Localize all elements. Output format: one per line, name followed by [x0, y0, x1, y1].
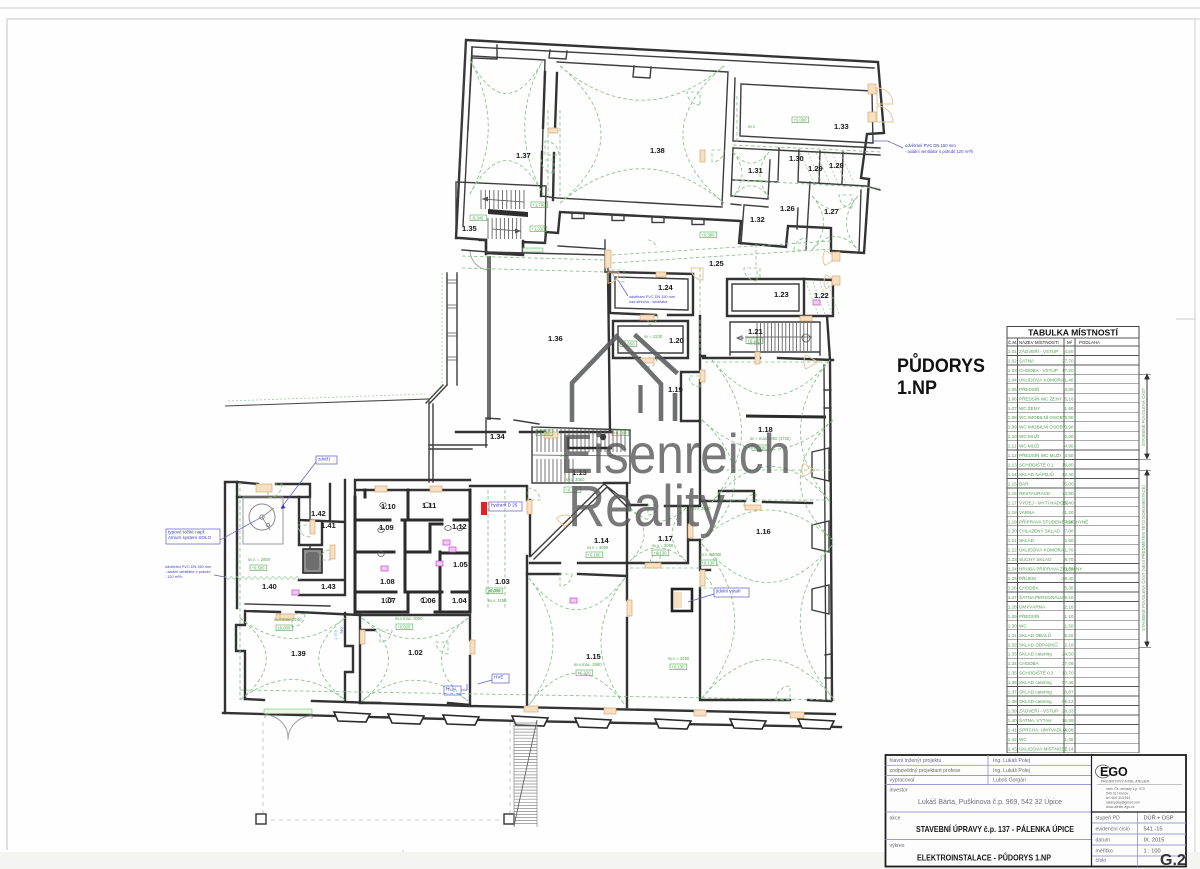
svg-text:1.05: 1.05 [1008, 387, 1017, 392]
svg-text:1.01: 1.01 [1008, 349, 1017, 354]
svg-text:1.38: 1.38 [650, 146, 665, 155]
svg-text:1.30: 1.30 [1008, 623, 1017, 628]
svg-text:1 : 100: 1 : 100 [1144, 849, 1161, 855]
svg-text:EGO: EGO [1100, 765, 1128, 779]
svg-text:-0,340: -0,340 [472, 215, 485, 220]
svg-text:WC IMOBILNÍ OSOBY: WC IMOBILNÍ OSOBY [1019, 414, 1066, 420]
svg-text:1.31: 1.31 [748, 166, 764, 175]
svg-text:±0,000: ±0,000 [278, 625, 291, 630]
svg-text:1.37: 1.37 [1008, 690, 1017, 695]
svg-text:1.09: 1.09 [379, 523, 394, 532]
svg-text:STAVEBNĚ POVOLENÁ ČÁST: STAVEBNĚ POVOLENÁ ČÁST [1141, 387, 1146, 446]
svg-text:19,80: 19,80 [1062, 463, 1074, 468]
svg-text:27,06: 27,06 [1062, 661, 1074, 666]
svg-text:WC ŽENY: WC ŽENY [1019, 404, 1040, 411]
svg-text:541 -15: 541 -15 [1144, 827, 1163, 833]
svg-text:1.03: 1.03 [495, 577, 510, 586]
svg-text:1.11: 1.11 [422, 501, 437, 510]
svg-text:4,08: 4,08 [1065, 727, 1074, 732]
svg-text:Č.M.: Č.M. [1008, 340, 1017, 345]
svg-text:PŘEDSÍŇ WC ŽENY: PŘEDSÍŇ WC ŽENY [1019, 394, 1062, 401]
svg-text:1.29: 1.29 [1008, 614, 1017, 619]
svg-text:DÚŘ + DSP: DÚŘ + DSP [1144, 814, 1174, 822]
svg-text:4,50: 4,50 [1065, 453, 1074, 458]
svg-text:1.15: 1.15 [1008, 481, 1017, 486]
svg-text:5,20: 5,20 [1065, 633, 1074, 638]
svg-text:1.21: 1.21 [1008, 538, 1017, 543]
svg-text:investor: investor [890, 788, 908, 794]
svg-text:ÚKLIDOVÁ KOMORA: ÚKLIDOVÁ KOMORA [1019, 547, 1065, 553]
svg-text:vypracoval: vypracoval [890, 777, 915, 783]
svg-text:SKLAD OBALŮ: SKLAD OBALŮ [1019, 632, 1051, 638]
svg-text:- axiální ventilátor v potrubí: - axiální ventilátor v potrubí [165, 570, 212, 574]
svg-text:1.04: 1.04 [452, 596, 468, 605]
svg-text:15,40: 15,40 [1062, 500, 1074, 505]
svg-text:WC: WC [1019, 737, 1027, 742]
svg-text:13,70: 13,70 [1062, 671, 1074, 676]
svg-text:1.26: 1.26 [1008, 586, 1017, 591]
svg-text:3,90: 3,90 [1065, 425, 1074, 430]
svg-text:7,00: 7,00 [1065, 529, 1074, 534]
svg-text:1,10: 1,10 [1065, 614, 1074, 619]
svg-text:+0,380: +0,380 [702, 232, 716, 237]
svg-text:1.36: 1.36 [548, 334, 563, 343]
svg-text:SKLAD catering: SKLAD catering [1019, 652, 1052, 657]
svg-text:Luboš Gorgán: Luboš Gorgán [993, 777, 1026, 783]
svg-text:1 979: 1 979 [333, 629, 338, 640]
svg-text:SKLAD ODPADKŮ: SKLAD ODPADKŮ [1019, 641, 1058, 647]
svg-text:1.24: 1.24 [658, 283, 674, 292]
svg-text:1,70: 1,70 [1065, 548, 1074, 553]
svg-text:Lukáš Bárta, Puškinova č.p. 96: Lukáš Bárta, Puškinova č.p. 969, 542 32 … [918, 797, 1062, 806]
svg-text:akce: akce [890, 816, 901, 822]
svg-text:sv.v.max. 2980: sv.v.max. 2980 [574, 662, 602, 667]
svg-text:17,20: 17,20 [1062, 368, 1074, 373]
svg-text:30,87: 30,87 [1062, 690, 1074, 695]
svg-text:PROJEKTOVÝ A ING. ATELIER: PROJEKTOVÝ A ING. ATELIER [1101, 780, 1150, 784]
svg-text:sv.v: sv.v [748, 124, 756, 129]
svg-text:1.28: 1.28 [1008, 604, 1017, 609]
svg-text:1.39: 1.39 [1008, 708, 1017, 713]
svg-text:1.42: 1.42 [1008, 737, 1017, 742]
svg-text:1.05: 1.05 [453, 560, 469, 569]
svg-text:2,10: 2,10 [1065, 642, 1074, 647]
svg-text:ELEKTROINSTALACE - PŮDORYS 1.: ELEKTROINSTALACE - PŮDORYS 1.NP [917, 852, 1051, 863]
svg-text:1.33: 1.33 [1008, 652, 1017, 657]
svg-text:PŘEDSÍŇ: PŘEDSÍŇ [1019, 385, 1039, 392]
svg-text:SKLAD catering: SKLAD catering [1019, 699, 1052, 704]
svg-text:3,90: 3,90 [1065, 415, 1074, 420]
svg-text:1.25: 1.25 [709, 259, 725, 268]
svg-text:odvětrání PVC DN 150 mm: odvětrání PVC DN 150 mm [905, 143, 956, 148]
svg-text:1.27: 1.27 [824, 207, 839, 216]
svg-text:PŘEDSÍŇ: PŘEDSÍŇ [1019, 612, 1039, 619]
svg-text:CHODBA: CHODBA [1019, 661, 1040, 666]
svg-text:1.04: 1.04 [1008, 377, 1017, 382]
svg-text:zodpovědný projektant profese: zodpovědný projektant profese [890, 768, 961, 774]
svg-text:1.39: 1.39 [291, 649, 306, 658]
svg-text:1.31: 1.31 [1008, 633, 1017, 638]
svg-text:1.23: 1.23 [1008, 557, 1017, 562]
svg-text:1.07: 1.07 [1008, 406, 1017, 411]
svg-text:BAR: BAR [1019, 481, 1029, 486]
svg-text:WC MUŽI: WC MUŽI [1019, 432, 1039, 439]
svg-text:sv.v.max. 3050: sv.v.max. 3050 [395, 616, 423, 621]
svg-text:odvětrání PVC DN 150 mm: odvětrání PVC DN 150 mm [629, 295, 675, 299]
svg-text:2,00: 2,00 [1065, 434, 1074, 439]
svg-text:28,33: 28,33 [1062, 708, 1074, 713]
svg-text:1.22: 1.22 [814, 291, 829, 300]
svg-text:nad střechu - ventilátor: nad střechu - ventilátor [629, 300, 668, 304]
svg-text:sv.v.max. 3240: sv.v.max. 3240 [274, 617, 302, 622]
svg-text:+1,760: +1,760 [533, 202, 547, 207]
svg-text:+0,160: +0,160 [588, 552, 602, 557]
svg-text:1.37: 1.37 [516, 151, 531, 160]
svg-text:sv.v = 3080: sv.v = 3080 [700, 552, 722, 557]
svg-text:1.06: 1.06 [1008, 396, 1017, 401]
svg-text:1.32: 1.32 [750, 215, 765, 224]
svg-text:35,00: 35,00 [1062, 481, 1074, 486]
svg-text:+0,025: +0,025 [398, 624, 412, 629]
svg-text:1.02: 1.02 [408, 648, 423, 657]
svg-text:TABULKA MÍSTNOSTÍ: TABULKA MÍSTNOSTÍ [1028, 327, 1118, 337]
svg-text:1.19: 1.19 [1008, 519, 1017, 524]
svg-text:1.03: 1.03 [1008, 368, 1017, 373]
svg-text:PŮDORYS: PŮDORYS [897, 351, 985, 377]
svg-text:1,90: 1,90 [1065, 406, 1074, 411]
svg-text:- 120 m³/h: - 120 m³/h [165, 575, 182, 579]
svg-text:Ing. Lukáš Polej: Ing. Lukáš Polej [993, 768, 1030, 774]
svg-text:hlavní inženýr projektu: hlavní inženýr projektu [890, 758, 942, 764]
svg-text:±0,000: ±0,000 [488, 588, 501, 593]
svg-text:12,40: 12,40 [1062, 472, 1074, 477]
svg-text:číslo: číslo [1096, 858, 1107, 864]
svg-text:1.09: 1.09 [1008, 425, 1017, 430]
svg-text:1.16: 1.16 [1008, 491, 1017, 496]
svg-text:7,90: 7,90 [1065, 519, 1074, 524]
svg-text:SKLAD NÁPOJŮ: SKLAD NÁPOJŮ [1019, 471, 1054, 477]
svg-text:1,40: 1,40 [1065, 377, 1074, 382]
svg-text:+0,000: +0,000 [794, 117, 808, 122]
svg-text:760: 760 [339, 627, 344, 634]
svg-text:1.43: 1.43 [321, 582, 336, 591]
svg-text:1.32: 1.32 [1008, 642, 1017, 647]
svg-text:1.21: 1.21 [748, 327, 764, 336]
svg-text:1.08: 1.08 [1008, 415, 1017, 420]
svg-text:stupeň PD: stupeň PD [1096, 816, 1120, 822]
svg-text:1.30: 1.30 [789, 154, 804, 163]
svg-text:- axiální ventilátor s potrubí: - axiální ventilátor s potrubí 120 m³/h [905, 149, 974, 154]
svg-text:RESTAURACE: RESTAURACE [1019, 491, 1050, 496]
svg-text:1.02: 1.02 [1008, 358, 1017, 363]
svg-text:G.2: G.2 [1160, 852, 1186, 869]
svg-text:1.08: 1.08 [380, 577, 395, 586]
svg-text:1.41: 1.41 [321, 521, 337, 530]
svg-text:+0,130: +0,130 [702, 560, 716, 565]
svg-text:1.40: 1.40 [262, 582, 277, 591]
svg-text:datum: datum [1096, 838, 1110, 844]
svg-text:1.38: 1.38 [1008, 699, 1017, 704]
svg-text:SKLAD catering: SKLAD catering [1019, 690, 1052, 695]
svg-text:1.27: 1.27 [1008, 595, 1017, 600]
svg-text:evidenční číslo: evidenční číslo [1096, 827, 1130, 833]
svg-text:1.10: 1.10 [381, 502, 396, 511]
svg-text:1.24: 1.24 [1008, 567, 1017, 572]
svg-text:jídelní výtah: jídelní výtah [715, 589, 741, 594]
svg-text:1.25: 1.25 [1008, 576, 1017, 581]
svg-text:1.16: 1.16 [756, 527, 771, 536]
svg-text:1.NP: 1.NP [897, 377, 937, 399]
svg-text:CHLAZENÝ SKLAD: CHLAZENÝ SKLAD [1019, 528, 1061, 534]
svg-text:CHODBA - VSTUP: CHODBA - VSTUP [1019, 368, 1058, 373]
svg-text:3,80: 3,80 [1065, 387, 1074, 392]
svg-text:1.35: 1.35 [462, 224, 478, 233]
svg-text:ÚKLIDOVÁ KOMORA: ÚKLIDOVÁ KOMORA [1019, 376, 1065, 382]
svg-text:měřítko: měřítko [1096, 849, 1113, 855]
svg-text:VARNA: VARNA [1019, 510, 1035, 515]
svg-text:1.22: 1.22 [1008, 548, 1017, 553]
svg-text:1.19: 1.19 [668, 385, 683, 394]
svg-text:1.07: 1.07 [381, 596, 396, 605]
svg-text:SPRCHA, UMÝVADLO: SPRCHA, UMÝVADLO [1019, 726, 1067, 732]
svg-text:+0,130: +0,130 [672, 664, 686, 669]
svg-text:1.17: 1.17 [1008, 500, 1017, 505]
svg-text:+0,425: +0,425 [747, 341, 761, 346]
svg-text:M²: M² [1067, 340, 1073, 345]
svg-text:549 31 Hronov: 549 31 Hronov [1106, 792, 1129, 796]
svg-text:tel. 604 310 913: tel. 604 310 913 [1106, 796, 1130, 800]
svg-text:sv.v. = 2650: sv.v. = 2650 [248, 557, 271, 562]
svg-text:16,89: 16,89 [1062, 718, 1074, 723]
svg-text:ZÁDVEŘÍ - VSTUP: ZÁDVEŘÍ - VSTUP [1019, 347, 1058, 354]
svg-text:+0,320: +0,320 [578, 670, 592, 675]
svg-text:sv.v = 3080: sv.v = 3080 [652, 543, 674, 548]
svg-text:Atrium system SOLO: Atrium system SOLO [168, 535, 212, 540]
svg-text:1.14: 1.14 [1008, 472, 1017, 477]
svg-text:2,14: 2,14 [1065, 746, 1074, 751]
svg-text:nám. Čs. armády č.p. 970: nám. Čs. armády č.p. 970 [1106, 786, 1145, 791]
svg-text:24,50: 24,50 [1062, 652, 1074, 657]
svg-text:sv.v = 3050: sv.v = 3050 [587, 545, 609, 550]
svg-text:WC IMOBILNÍ OSOBY: WC IMOBILNÍ OSOBY [1019, 424, 1066, 430]
svg-text:výkres: výkres [890, 843, 905, 849]
svg-text:PODLAHA: PODLAHA [1079, 340, 1100, 345]
svg-text:1.20: 1.20 [669, 336, 684, 345]
svg-text:SKLAD: SKLAD [1019, 538, 1035, 543]
svg-text:+1,330: +1,330 [532, 226, 546, 231]
svg-text:UMÝVÁRNA: UMÝVÁRNA [1019, 603, 1046, 609]
svg-text:2,10: 2,10 [1065, 604, 1074, 609]
svg-text:1.12: 1.12 [1008, 453, 1017, 458]
svg-text:1.11: 1.11 [1008, 444, 1017, 449]
svg-text:1.29: 1.29 [808, 164, 823, 173]
svg-text:1,40: 1,40 [1065, 737, 1074, 742]
svg-text:1.12: 1.12 [452, 522, 467, 531]
svg-text:WC MUŽI: WC MUŽI [1019, 442, 1039, 449]
svg-text:5,10: 5,10 [1065, 396, 1074, 401]
svg-text:1.28: 1.28 [829, 161, 844, 170]
svg-text:1.10: 1.10 [1008, 434, 1017, 439]
svg-text:2,60: 2,60 [1065, 538, 1074, 543]
svg-text:STAVEBNĚ POVOLENÁ ČÁST (NENÍ P: STAVEBNĚ POVOLENÁ ČÁST (NENÍ PŘEDMĚTEM T… [1141, 485, 1146, 631]
svg-text:9,60: 9,60 [1065, 567, 1074, 572]
svg-text:ZÁDVEŘÍ - VSTUP: ZÁDVEŘÍ - VSTUP [1019, 706, 1058, 713]
svg-text:59,12: 59,12 [1062, 699, 1074, 704]
svg-text:ŠATNA, VÝTAH: ŠATNA, VÝTAH [1019, 717, 1052, 723]
svg-text:1.15: 1.15 [586, 652, 602, 661]
svg-text:sv.v = 3450: sv.v = 3450 [668, 656, 690, 661]
svg-text:1.36: 1.36 [1008, 680, 1017, 685]
svg-text:PŘÍJEM: PŘÍJEM [1019, 574, 1036, 581]
svg-text:SCHODIŠTĚ 0.1: SCHODIŠTĚ 0.1 [1019, 461, 1054, 468]
svg-text:+1,360: +1,360 [538, 430, 552, 435]
svg-text:8,70: 8,70 [1065, 557, 1074, 562]
svg-text:odvětrání PVC DN 150 mm: odvětrání PVC DN 150 mm [165, 565, 211, 569]
svg-text:1.18: 1.18 [1008, 510, 1017, 515]
svg-text:HUV: HUV [446, 687, 457, 692]
svg-text:www.atelier-ego.cz: www.atelier-ego.cz [1106, 805, 1135, 809]
svg-text:1.20: 1.20 [1008, 529, 1017, 534]
svg-text:zdviž): zdviž) [318, 457, 330, 462]
svg-text:WC: WC [1019, 623, 1027, 628]
svg-text:1.13: 1.13 [1008, 463, 1017, 468]
svg-text:28,40: 28,40 [1062, 576, 1074, 581]
svg-text:ŠATNA PERSONÁLU: ŠATNA PERSONÁLU [1019, 594, 1063, 600]
svg-text:1.26: 1.26 [780, 204, 795, 213]
svg-text:NÁZEV MÍSTNOSTI: NÁZEV MÍSTNOSTI [1019, 340, 1059, 345]
svg-text:Ing. Lukáš Polej: Ing. Lukáš Polej [993, 758, 1030, 764]
svg-text:IX. 2015: IX. 2015 [1144, 838, 1165, 844]
svg-text:SKLAD catering: SKLAD catering [1019, 680, 1052, 685]
svg-text:1,50: 1,50 [1065, 623, 1074, 628]
svg-text:Reality: Reality [568, 474, 725, 539]
svg-text:PŘEDSÍŇ WC MUŽI: PŘEDSÍŇ WC MUŽI [1019, 451, 1061, 458]
svg-text:73,90: 73,90 [1062, 491, 1074, 496]
svg-text:+0,130: +0,130 [654, 550, 668, 555]
svg-text:1.23: 1.23 [774, 290, 789, 299]
svg-text:hydrant D 25: hydrant D 25 [491, 503, 518, 508]
svg-text:1.06: 1.06 [421, 596, 436, 605]
svg-text:57,46: 57,46 [1062, 680, 1074, 685]
svg-text:9,10: 9,10 [1065, 595, 1074, 600]
svg-text:1.33: 1.33 [834, 122, 849, 131]
svg-text:1.42: 1.42 [311, 509, 326, 518]
svg-text:HVE: HVE [494, 675, 503, 680]
svg-text:4,50: 4,50 [1065, 349, 1074, 354]
svg-text:5,30: 5,30 [1065, 586, 1074, 591]
svg-text:sv.v. 3150: sv.v. 3150 [488, 598, 507, 603]
svg-text:sv = 2230: sv = 2230 [644, 334, 663, 339]
svg-text:4,90: 4,90 [1065, 444, 1074, 449]
svg-text:STAVEBNÍ ÚPRAVY č.p. 137 - PÁL: STAVEBNÍ ÚPRAVY č.p. 137 - PÁLENKA ÚPICE [916, 823, 1074, 834]
svg-text:27,70: 27,70 [1062, 358, 1074, 363]
svg-text:41,20: 41,20 [1062, 510, 1074, 515]
svg-text:SCHODIŠTĚ 0.3: SCHODIŠTĚ 0.3 [1019, 669, 1054, 676]
svg-text:1.35: 1.35 [1008, 671, 1017, 676]
svg-text:+0,500: +0,500 [252, 565, 266, 570]
svg-text:1.43: 1.43 [1008, 746, 1017, 751]
svg-text:ÚKLIDOVÁ MÍSTNOST: ÚKLIDOVÁ MÍSTNOST [1019, 745, 1067, 751]
svg-text:CHODBA: CHODBA [1019, 586, 1040, 591]
svg-text:ŠATNA: ŠATNA [1019, 357, 1035, 363]
svg-text:SUCHÝ SKLAD: SUCHÝ SKLAD [1019, 556, 1052, 562]
svg-text:1.34: 1.34 [490, 432, 506, 441]
svg-text:1.40: 1.40 [1008, 718, 1017, 723]
svg-text:PŘÍPRAVA STUDENÉ KUCHYNĚ: PŘÍPRAVA STUDENÉ KUCHYNĚ [1019, 517, 1088, 524]
svg-text:1.41: 1.41 [1008, 727, 1017, 732]
svg-text:1.34: 1.34 [1008, 661, 1017, 666]
svg-text:lukaspolej@gmail.com: lukaspolej@gmail.com [1106, 801, 1140, 805]
